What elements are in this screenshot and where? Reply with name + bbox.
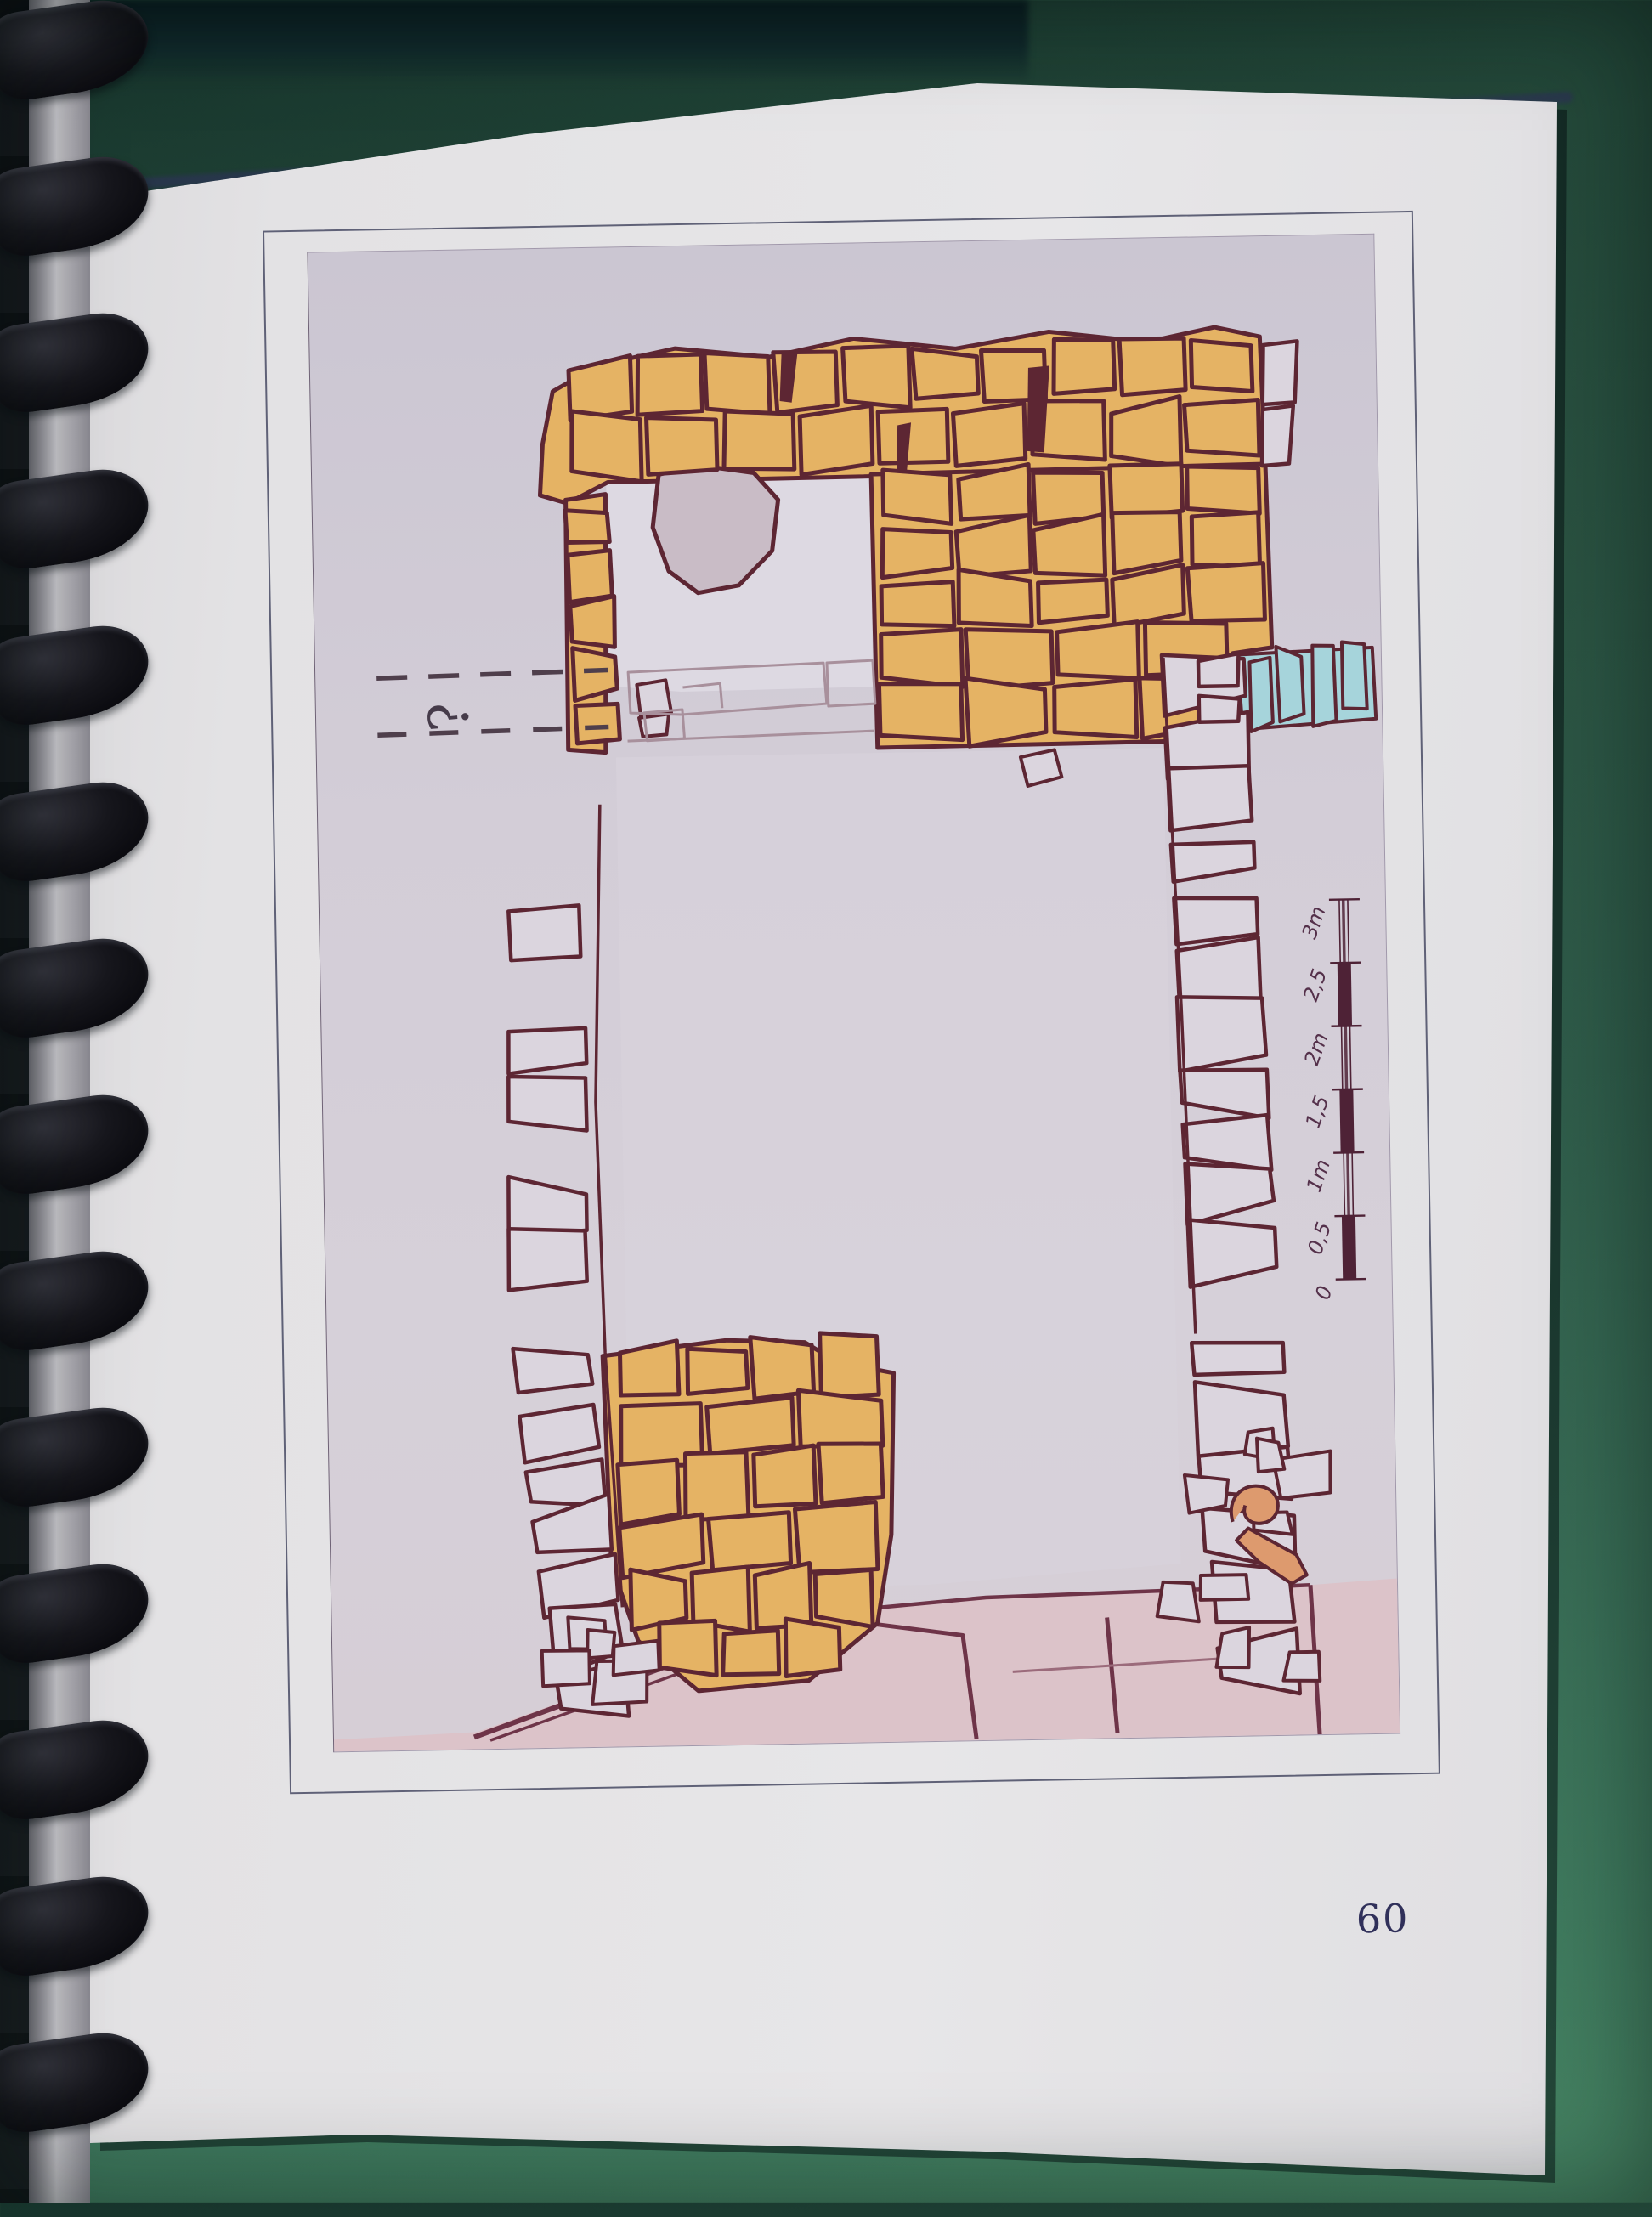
scale-label-2m: 2m	[1299, 1030, 1332, 1069]
desk-shadow-band	[0, 0, 1028, 85]
scale-bar: 0 0,5 1m 1,5 2m 2,5 3m	[1297, 899, 1366, 1304]
book-page: ?	[0, 0, 1652, 2203]
scale-label-1m: 1m	[1302, 1157, 1335, 1196]
scale-label-15: 1,5	[1301, 1093, 1334, 1131]
page-content: ?	[0, 0, 1652, 2217]
scale-label-25: 2,5	[1298, 966, 1332, 1004]
site-plan-drawing: ?	[308, 235, 1400, 1752]
question-mark: ?	[417, 699, 483, 734]
scale-label-3m: 3m	[1298, 903, 1331, 942]
scale-label-05: 0,5	[1303, 1219, 1336, 1258]
figure-plate: ?	[307, 234, 1400, 1753]
scale-label-0: 0	[1310, 1283, 1337, 1304]
page-number: 60	[1355, 1894, 1458, 1942]
binding-tooth	[0, 0, 155, 105]
